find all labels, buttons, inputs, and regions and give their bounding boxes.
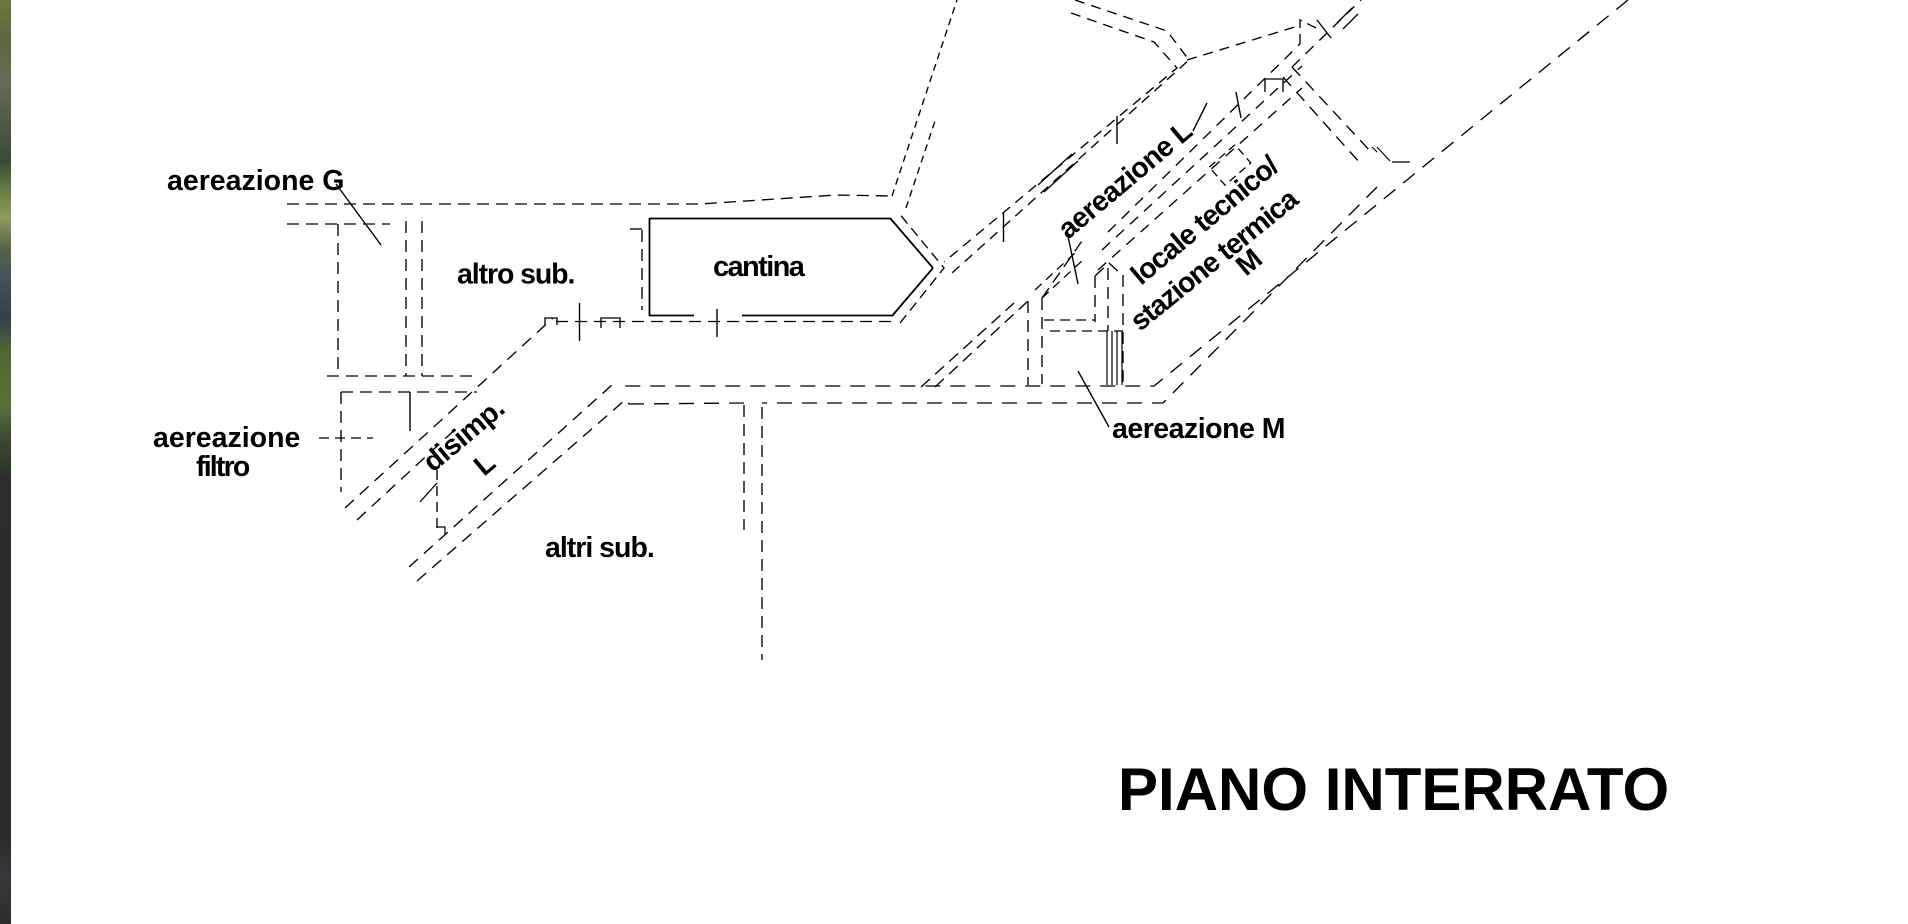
- svg-text:altro sub.: altro sub.: [457, 259, 574, 291]
- svg-text:filtro: filtro: [196, 451, 250, 483]
- svg-text:aereazione G: aereazione G: [167, 165, 344, 197]
- svg-text:altri sub.: altri sub.: [545, 532, 654, 564]
- svg-text:cantina: cantina: [713, 251, 806, 283]
- svg-text:PIANO INTERRATO: PIANO INTERRATO: [1118, 756, 1669, 823]
- svg-text:L: L: [468, 447, 502, 483]
- svg-text:aereazione: aereazione: [153, 422, 300, 454]
- svg-text:aereazione M: aereazione M: [1112, 413, 1285, 445]
